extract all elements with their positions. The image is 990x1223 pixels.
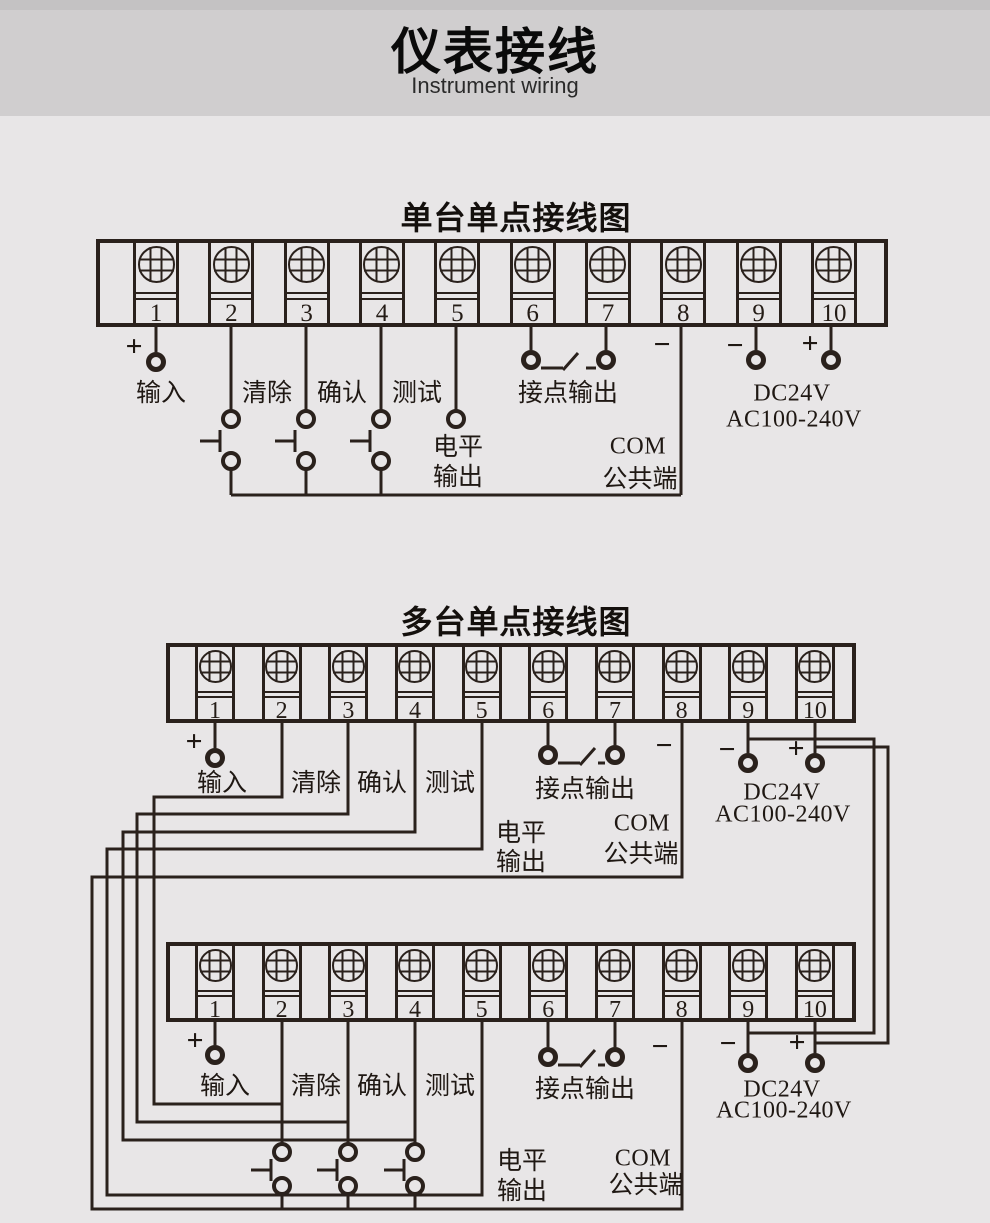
label-level-output: 输出 [497, 1171, 547, 1207]
terminal-cell: 9 [736, 243, 782, 323]
terminal-cell: 8 [660, 243, 706, 323]
terminal-number: 5 [451, 300, 464, 328]
terminal-cell: 7 [595, 647, 635, 719]
terminal-ring-icon [208, 1048, 223, 1063]
terminal-cell: 6 [528, 946, 568, 1018]
page-header: 仪表接线 Instrument wiring [0, 0, 990, 116]
terminal-cell: 1 [133, 243, 179, 323]
terminal-cell: 4 [395, 647, 435, 719]
wire [531, 327, 606, 350]
label-clear: 清除 [291, 1066, 341, 1102]
terminal-number: 9 [742, 698, 754, 725]
terminal-cell: 9 [728, 946, 768, 1018]
terminal-number: 3 [300, 300, 313, 328]
screw-icon [513, 243, 553, 294]
terminal-number: 3 [342, 698, 354, 725]
terminal-number: 7 [609, 698, 621, 725]
terminal-cell: 10 [795, 946, 835, 1018]
switch-contact-icon [558, 1050, 605, 1067]
label-test: 测试 [392, 373, 442, 409]
terminal-cell: 6 [528, 647, 568, 719]
wire [231, 470, 381, 495]
terminal-ring-icon [524, 353, 539, 368]
label-contact-output: 接点输出 [518, 373, 618, 409]
terminal-cell: 10 [811, 243, 857, 323]
label-confirm: 确认 [317, 373, 367, 409]
terminal-number: 8 [676, 698, 688, 725]
push-button-ring-icon [298, 411, 314, 427]
terminal-number: 2 [225, 300, 238, 328]
terminal-cell: 2 [208, 243, 254, 323]
terminal-ring-icon [808, 1056, 823, 1071]
terminal-cell: 9 [728, 647, 768, 719]
screw-icon [531, 647, 565, 693]
screw-icon [731, 647, 765, 693]
plus-sign: + [185, 725, 202, 759]
terminal-ring-icon [824, 353, 839, 368]
screw-icon [265, 647, 299, 693]
terminal-cell: 7 [595, 946, 635, 1018]
push-button-ring-icon [223, 411, 239, 427]
label-input: 输入 [200, 1066, 250, 1102]
terminal-ring-icon [541, 1050, 556, 1065]
terminal-ring-icon [541, 748, 556, 763]
minus-sign: − [653, 328, 670, 362]
push-button-ring-icon [373, 411, 389, 427]
screw-icon [265, 946, 299, 992]
terminal-number: 9 [742, 997, 754, 1024]
terminal-block-multi-upper: 1 2 3 4 5 6 7 8 9 10 [166, 643, 856, 723]
terminal-number: 8 [676, 997, 688, 1024]
terminal-cell: 4 [395, 946, 435, 1018]
plus-sign: + [186, 1024, 203, 1058]
terminal-ring-icon [608, 1050, 623, 1065]
label-confirm: 确认 [357, 1066, 407, 1102]
screw-icon [465, 946, 499, 992]
screw-icon [331, 647, 365, 693]
push-button-actuator-icon [350, 430, 370, 452]
terminal-cell: 8 [662, 647, 702, 719]
minus-sign: − [719, 1027, 736, 1061]
terminal-number: 1 [150, 300, 163, 328]
terminal-number: 4 [409, 698, 421, 725]
screw-icon [665, 946, 699, 992]
label-clear: 清除 [291, 763, 341, 799]
push-button-ring-icon [274, 1144, 290, 1160]
push-button-ring-icon [407, 1144, 423, 1160]
label-clear: 清除 [242, 373, 292, 409]
label-power-ac: AC100-240V [726, 407, 862, 434]
screw-icon [598, 946, 632, 992]
terminal-cell: 8 [662, 946, 702, 1018]
screw-icon [665, 647, 699, 693]
push-button-actuator-icon [384, 1159, 404, 1181]
label-com: COM [610, 434, 666, 461]
label-contact-output: 接点输出 [535, 1069, 635, 1105]
label-test: 测试 [425, 1066, 475, 1102]
screw-icon [198, 647, 232, 693]
push-button-ring-icon [298, 453, 314, 469]
label-common-terminal: 公共端 [602, 459, 677, 495]
terminal-ring-icon [599, 353, 614, 368]
terminal-number: 3 [342, 997, 354, 1024]
terminal-cell: 2 [262, 647, 302, 719]
screw-icon [398, 946, 432, 992]
terminal-block-single: 1 2 3 4 5 6 7 8 9 10 [96, 239, 888, 327]
label-power-dc: DC24V [753, 381, 830, 408]
terminal-number: 1 [209, 997, 221, 1024]
terminal-number: 9 [752, 300, 765, 328]
wiring-diagram-page: 仪表接线 Instrument wiring 单台单点接线图 多台单点接线图 1… [0, 0, 990, 1223]
terminal-number: 8 [677, 300, 690, 328]
push-button-actuator-icon [200, 430, 220, 452]
plus-sign: + [788, 1026, 805, 1060]
minus-sign: − [655, 729, 672, 763]
terminal-block-multi-lower: 1 2 3 4 5 6 7 8 9 10 [166, 942, 856, 1022]
screw-icon [731, 946, 765, 992]
screw-icon [198, 946, 232, 992]
screw-icon [287, 243, 327, 294]
plus-sign: + [125, 330, 142, 364]
terminal-cell: 3 [328, 647, 368, 719]
multi-diagram-title: 多台单点接线图 [400, 597, 631, 643]
wire [548, 723, 615, 745]
terminal-number: 2 [276, 997, 288, 1024]
single-diagram-title: 单台单点接线图 [400, 193, 631, 239]
terminal-ring-icon [608, 748, 623, 763]
terminal-ring-icon [149, 355, 164, 370]
terminal-cell: 1 [195, 647, 235, 719]
screw-icon [136, 243, 176, 294]
terminal-cell: 6 [510, 243, 556, 323]
push-button-actuator-icon [251, 1159, 271, 1181]
screw-icon [814, 243, 854, 294]
label-common-terminal: 公共端 [603, 834, 678, 870]
label-common-terminal: 公共端 [608, 1165, 683, 1201]
terminal-number: 7 [609, 997, 621, 1024]
label-input: 输入 [197, 763, 247, 799]
push-button-ring-icon [274, 1178, 290, 1194]
label-power-ac: AC100-240V [715, 802, 851, 829]
terminal-ring-icon [448, 411, 464, 427]
minus-sign: − [718, 733, 735, 767]
terminal-cell: 5 [462, 946, 502, 1018]
wire [756, 327, 831, 350]
terminal-cell: 3 [328, 946, 368, 1018]
terminal-number: 4 [376, 300, 389, 328]
switch-contact-icon [558, 748, 605, 765]
terminal-cell: 10 [795, 647, 835, 719]
label-power-ac: AC100-240V [716, 1098, 852, 1125]
label-test: 测试 [425, 763, 475, 799]
wire [548, 1022, 615, 1047]
switch-contact-icon [541, 353, 596, 370]
page-subtitle: Instrument wiring [411, 73, 579, 99]
terminal-number: 2 [276, 698, 288, 725]
terminal-number: 6 [542, 997, 554, 1024]
push-button-ring-icon [373, 453, 389, 469]
screw-icon [465, 647, 499, 693]
terminal-number: 6 [526, 300, 539, 328]
wire [282, 1194, 415, 1209]
header-top-strip [0, 0, 990, 10]
terminal-ring-icon [741, 1056, 756, 1071]
push-button-ring-icon [407, 1178, 423, 1194]
terminal-number: 4 [409, 997, 421, 1024]
terminal-cell: 5 [462, 647, 502, 719]
push-button-ring-icon [223, 453, 239, 469]
terminal-ring-icon [741, 756, 756, 771]
push-button-ring-icon [340, 1178, 356, 1194]
screw-icon [588, 243, 628, 294]
terminal-number: 10 [803, 698, 827, 725]
minus-sign: − [726, 329, 743, 363]
terminal-cell: 4 [359, 243, 405, 323]
label-input: 输入 [136, 373, 186, 409]
screw-icon [663, 243, 703, 294]
push-button-actuator-icon [317, 1159, 337, 1181]
terminal-cell: 2 [262, 946, 302, 1018]
terminal-ring-icon [808, 756, 823, 771]
screw-icon [531, 946, 565, 992]
minus-sign: − [651, 1030, 668, 1064]
label-level-output: 输出 [433, 457, 483, 493]
terminal-ring-icon [749, 353, 764, 368]
terminal-cell: 7 [585, 243, 631, 323]
screw-icon [331, 946, 365, 992]
terminal-cell: 3 [284, 243, 330, 323]
push-button-ring-icon [340, 1144, 356, 1160]
terminal-number: 1 [209, 698, 221, 725]
label-confirm: 确认 [357, 763, 407, 799]
screw-icon [211, 243, 251, 294]
terminal-cell: 5 [434, 243, 480, 323]
terminal-number: 5 [476, 698, 488, 725]
terminal-number: 5 [476, 997, 488, 1024]
screw-icon [362, 243, 402, 294]
terminal-number: 7 [602, 300, 615, 328]
screw-icon [437, 243, 477, 294]
screw-icon [598, 647, 632, 693]
label-level-output: 输出 [496, 842, 546, 878]
terminal-number: 10 [821, 300, 846, 328]
label-contact-output: 接点输出 [535, 769, 635, 805]
terminal-cell: 1 [195, 946, 235, 1018]
terminal-number: 10 [803, 997, 827, 1024]
screw-icon [739, 243, 779, 294]
screw-icon [798, 647, 832, 693]
plus-sign: + [801, 327, 818, 361]
push-button-actuator-icon [275, 430, 295, 452]
screw-icon [798, 946, 832, 992]
screw-icon [398, 647, 432, 693]
plus-sign: + [787, 732, 804, 766]
terminal-number: 6 [542, 698, 554, 725]
